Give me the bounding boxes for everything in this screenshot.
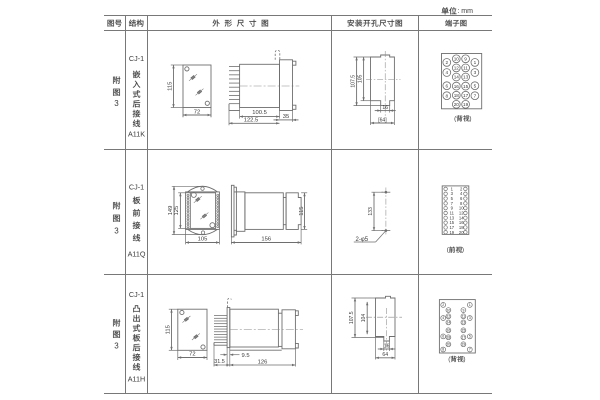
svg-text:18: 18 xyxy=(447,336,451,340)
svg-text:125: 125 xyxy=(174,206,180,216)
svg-text:2: 2 xyxy=(442,303,444,307)
svg-text:122.5: 122.5 xyxy=(244,117,259,123)
svg-text:CJ-1: CJ-1 xyxy=(129,54,144,63)
svg-text::: : xyxy=(457,8,459,15)
svg-text:9: 9 xyxy=(464,57,467,62)
svg-text:17: 17 xyxy=(462,336,466,340)
svg-text:3: 3 xyxy=(114,227,119,236)
svg-text:A11K: A11K xyxy=(128,130,145,139)
svg-text:[64]: [64] xyxy=(378,117,387,123)
svg-text:13: 13 xyxy=(463,75,469,80)
svg-text:20: 20 xyxy=(459,230,464,235)
svg-text:A11H: A11H xyxy=(128,375,145,384)
svg-text:20: 20 xyxy=(447,343,451,347)
svg-text:16: 16 xyxy=(454,84,460,89)
svg-text:72: 72 xyxy=(189,352,195,358)
svg-text:115: 115 xyxy=(167,82,173,91)
svg-text:16: 16 xyxy=(447,329,451,333)
svg-text:20: 20 xyxy=(454,102,460,107)
svg-text:6: 6 xyxy=(442,335,444,339)
svg-text:19: 19 xyxy=(449,230,454,235)
svg-text:17: 17 xyxy=(463,93,469,98)
svg-text:5: 5 xyxy=(469,335,471,339)
svg-text:13: 13 xyxy=(462,321,466,325)
svg-text:4: 4 xyxy=(445,70,448,75)
svg-text:10: 10 xyxy=(447,308,451,312)
svg-text:): ) xyxy=(462,247,464,254)
svg-text:105: 105 xyxy=(198,237,208,243)
svg-text:10: 10 xyxy=(454,57,460,62)
svg-text:31.5: 31.5 xyxy=(214,359,225,365)
svg-text:15: 15 xyxy=(462,329,466,333)
svg-text:7: 7 xyxy=(474,93,477,98)
svg-text:14: 14 xyxy=(454,75,460,80)
svg-text:1: 1 xyxy=(474,60,477,65)
svg-text:3: 3 xyxy=(469,316,471,320)
svg-text:11: 11 xyxy=(462,315,466,319)
svg-text:5: 5 xyxy=(474,83,477,88)
svg-text:64: 64 xyxy=(382,352,388,358)
svg-text:14: 14 xyxy=(447,321,451,325)
svg-text:115: 115 xyxy=(299,206,305,215)
svg-text:mm: mm xyxy=(461,8,473,15)
svg-text:105: 105 xyxy=(357,74,363,83)
svg-text:156: 156 xyxy=(261,237,271,243)
svg-text:15: 15 xyxy=(463,84,469,89)
svg-text:19: 19 xyxy=(462,343,466,347)
svg-text:19: 19 xyxy=(463,102,469,107)
svg-text:9.5: 9.5 xyxy=(242,353,250,359)
svg-text:CJ-1: CJ-1 xyxy=(129,290,144,299)
svg-text:133: 133 xyxy=(368,207,374,216)
svg-text:7: 7 xyxy=(469,348,471,352)
svg-text:16: 16 xyxy=(382,105,388,111)
svg-text:4: 4 xyxy=(442,316,444,320)
svg-text:8: 8 xyxy=(442,348,444,352)
svg-text:3: 3 xyxy=(114,342,119,351)
svg-text:35: 35 xyxy=(283,114,289,120)
svg-text:104: 104 xyxy=(361,314,367,323)
svg-text:6: 6 xyxy=(445,83,448,88)
svg-text:8: 8 xyxy=(445,93,448,98)
svg-text:72: 72 xyxy=(194,109,200,115)
svg-text:18: 18 xyxy=(454,93,460,98)
svg-text:149: 149 xyxy=(168,206,174,216)
svg-text:9: 9 xyxy=(462,308,464,312)
svg-text:115: 115 xyxy=(165,325,171,334)
svg-text:3: 3 xyxy=(474,70,477,75)
svg-text:107.5: 107.5 xyxy=(350,75,356,88)
svg-text:16: 16 xyxy=(384,343,390,349)
svg-text:A11Q: A11Q xyxy=(128,250,146,259)
svg-text:100.5: 100.5 xyxy=(252,110,267,116)
svg-text:3: 3 xyxy=(114,99,119,108)
svg-text:12: 12 xyxy=(454,66,460,71)
svg-text:126: 126 xyxy=(258,359,268,365)
svg-text:12: 12 xyxy=(447,315,451,319)
svg-text:): ) xyxy=(469,115,471,122)
svg-text:): ) xyxy=(463,356,465,363)
svg-text:1: 1 xyxy=(469,303,471,307)
svg-text:2: 2 xyxy=(445,60,448,65)
svg-text:11: 11 xyxy=(463,66,468,71)
svg-text:CJ-1: CJ-1 xyxy=(129,183,144,192)
svg-text:107.5: 107.5 xyxy=(349,311,355,324)
